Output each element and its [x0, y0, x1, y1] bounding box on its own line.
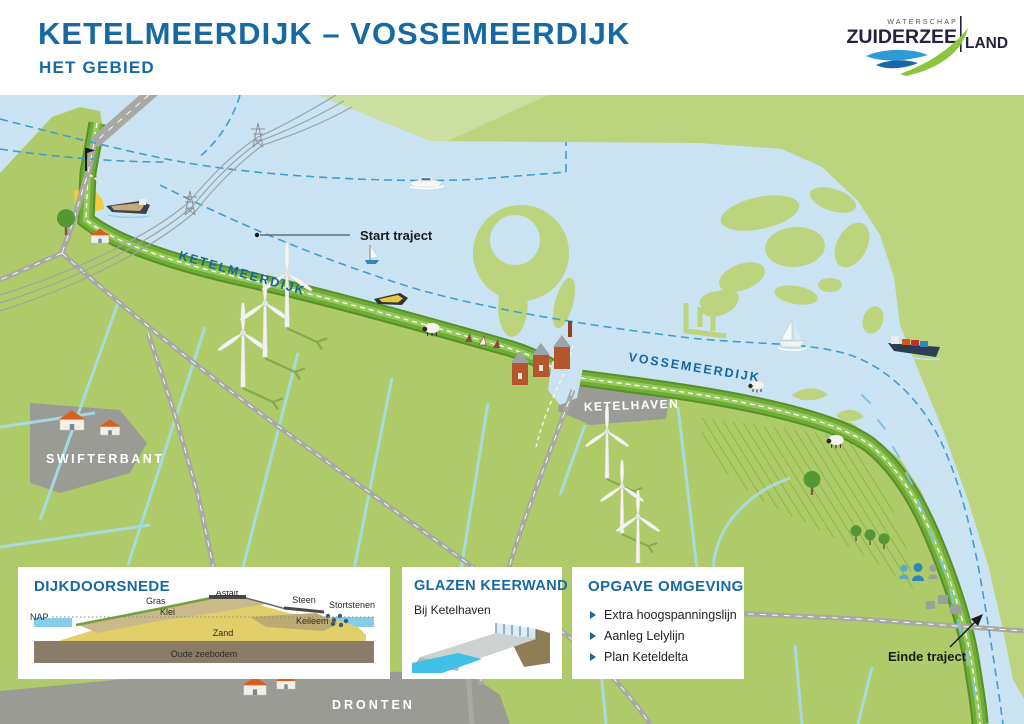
- panel-opgave-omgeving-title: OPGAVE OMGEVING: [572, 567, 744, 595]
- opgave-list: Extra hoogspanningslijn Aanleg Lelylijn …: [572, 608, 744, 664]
- dike-cross-section: NAP Gras Klei Asfalt Steen Stortstenen K…: [28, 591, 380, 671]
- glass-wall-illustration: [412, 615, 552, 675]
- layer-steen: [284, 608, 324, 612]
- list-item-label: Aanleg Lelylijn: [604, 629, 685, 643]
- gras-label: Gras: [146, 596, 166, 606]
- triangle-bullet-icon: [590, 611, 596, 619]
- logo-divider: [960, 16, 962, 52]
- klei-label: Klei: [160, 607, 175, 617]
- zand-label: Zand: [213, 628, 234, 638]
- logo-name-left: ZUIDERZEE: [846, 26, 957, 48]
- panel-glazen-keerwand-title: GLAZEN KEERWAND: [402, 567, 562, 594]
- start-traject-label: Start traject: [360, 228, 433, 243]
- list-item-label: Plan Keteldelta: [604, 650, 688, 664]
- panel-glazen-keerwand-subtitle: Bij Ketelhaven: [402, 594, 562, 617]
- list-item: Aanleg Lelylijn: [590, 629, 744, 643]
- page-title: KETELMEERDIJK – VOSSEMEERDIJK: [38, 16, 630, 52]
- swifterbant-label: SWIFTERBANT: [46, 452, 164, 466]
- steen-label: Steen: [292, 595, 316, 605]
- oude-zeebodem-label: Oude zeebodem: [171, 649, 238, 659]
- panel-glazen-keerwand: GLAZEN KEERWAND Bij Ketelhaven: [402, 567, 562, 679]
- asfalt-label: Asfalt: [216, 591, 239, 598]
- logo-top-label: WATERSCHAP: [887, 19, 958, 26]
- einde-traject-label: Einde traject: [888, 649, 967, 664]
- list-item: Plan Keteldelta: [590, 650, 744, 664]
- poster: KETELMEERDIJK – VOSSEMEERDIJK HET GEBIED…: [0, 0, 1024, 724]
- waterschap-zuiderzeeland-logo: WATERSCHAP ZUIDERZEE LAND: [836, 8, 1012, 88]
- page-subtitle: HET GEBIED: [39, 58, 155, 78]
- list-item-label: Extra hoogspanningslijn: [604, 608, 737, 622]
- header: KETELMEERDIJK – VOSSEMEERDIJK HET GEBIED…: [0, 0, 1024, 95]
- triangle-bullet-icon: [590, 632, 596, 640]
- logo-name-right: LAND: [965, 35, 1008, 52]
- nap-label: NAP: [30, 612, 49, 622]
- panel-dijkdoorsnede: DIJKDOORSNEDE NAP Gras Klei Asfalt Stee: [18, 567, 390, 679]
- list-item: Extra hoogspanningslijn: [590, 608, 744, 622]
- triangle-bullet-icon: [590, 653, 596, 661]
- stortstenen-label: Stortstenen: [329, 600, 375, 610]
- keileem-label: Keileem: [296, 616, 329, 626]
- panel-opgave-omgeving: OPGAVE OMGEVING Extra hoogspanningslijn …: [572, 567, 744, 679]
- dronten-label: DRONTEN: [332, 698, 415, 712]
